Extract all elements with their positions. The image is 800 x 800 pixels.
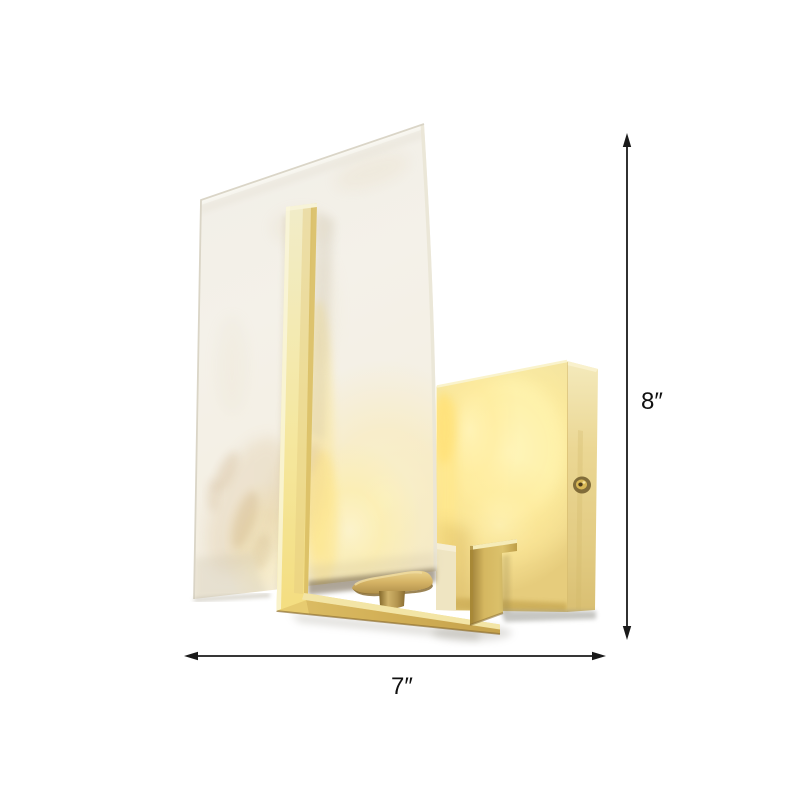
svg-text:7″: 7″ bbox=[391, 673, 413, 700]
svg-text:8″: 8″ bbox=[641, 388, 663, 415]
